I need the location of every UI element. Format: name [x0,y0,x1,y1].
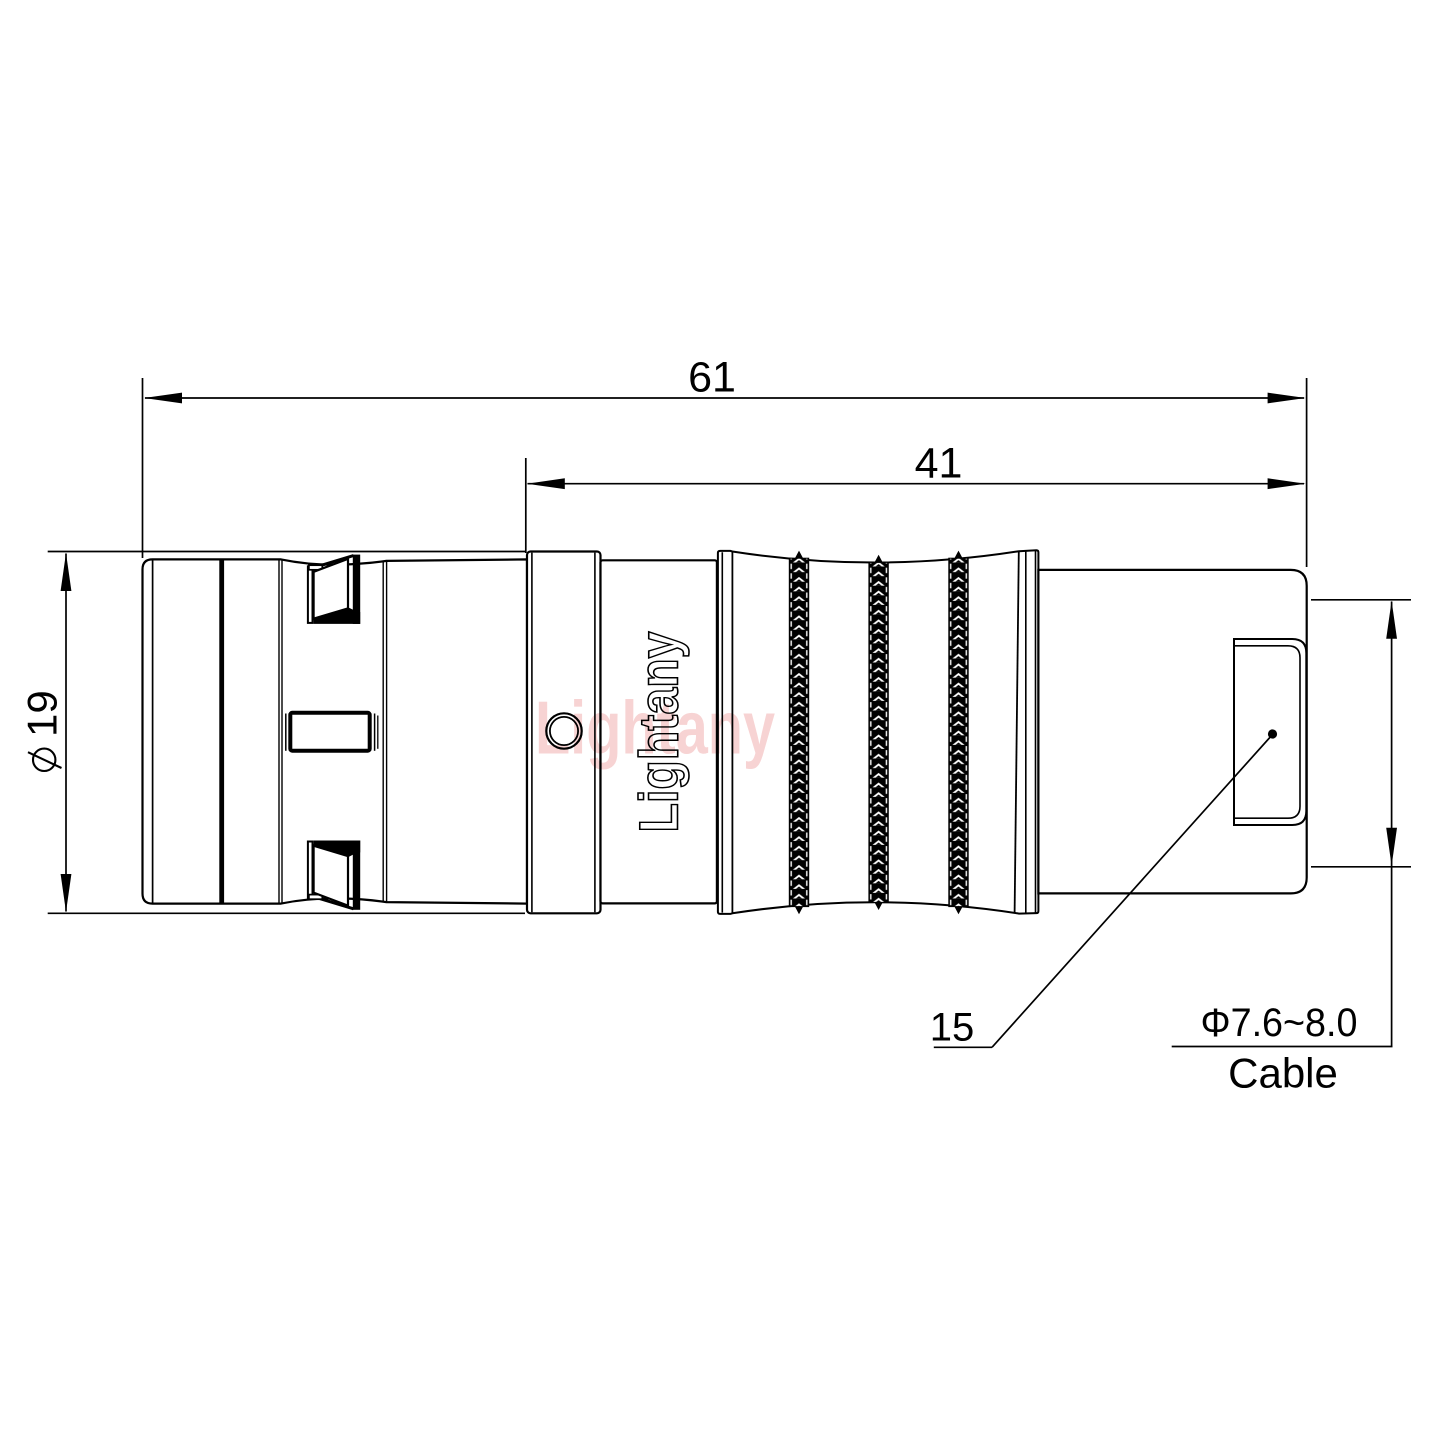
svg-text:Φ7.6~8.0: Φ7.6~8.0 [1201,1001,1358,1045]
svg-text:15: 15 [930,1006,975,1050]
svg-text:Lightany: Lightany [535,686,775,770]
svg-text:19: 19 [19,690,66,737]
svg-text:41: 41 [915,440,963,488]
svg-text:Cable: Cable [1228,1050,1338,1097]
svg-text:61: 61 [688,354,736,402]
